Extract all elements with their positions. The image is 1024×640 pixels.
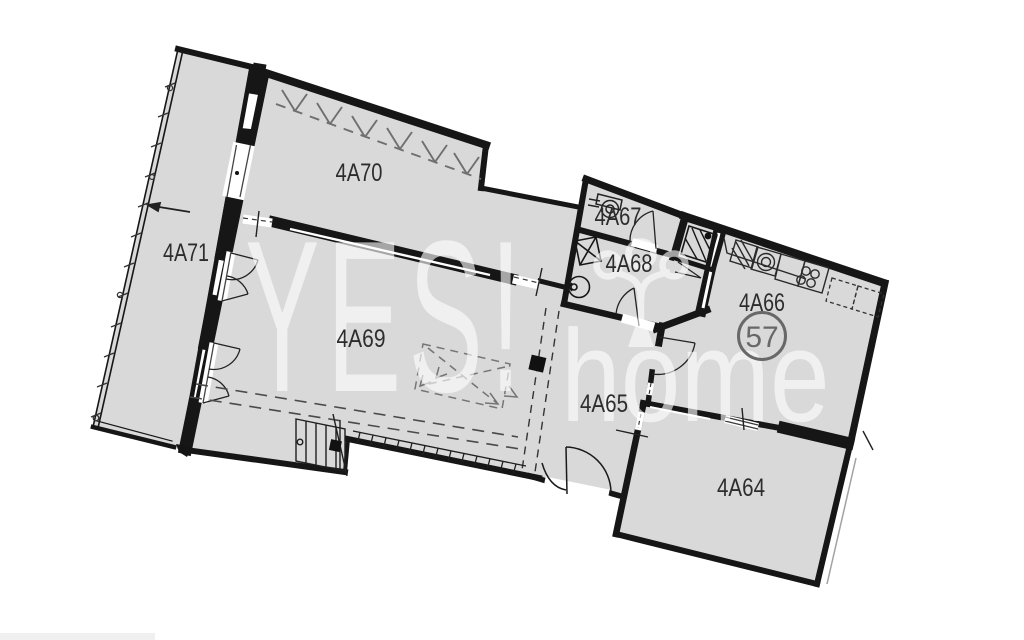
- svg-text:YES!: YES!: [245, 196, 528, 437]
- svg-text:57: 57: [745, 321, 778, 354]
- svg-text:home: home: [561, 304, 830, 449]
- svg-text:4A71: 4A71: [163, 239, 209, 267]
- svg-text:4A67: 4A67: [595, 203, 642, 231]
- svg-text:4A64: 4A64: [717, 474, 765, 502]
- svg-text:4A69: 4A69: [337, 325, 386, 353]
- svg-text:4A70: 4A70: [336, 159, 383, 187]
- svg-text:4A65: 4A65: [580, 390, 628, 418]
- svg-text:4A68: 4A68: [606, 250, 653, 278]
